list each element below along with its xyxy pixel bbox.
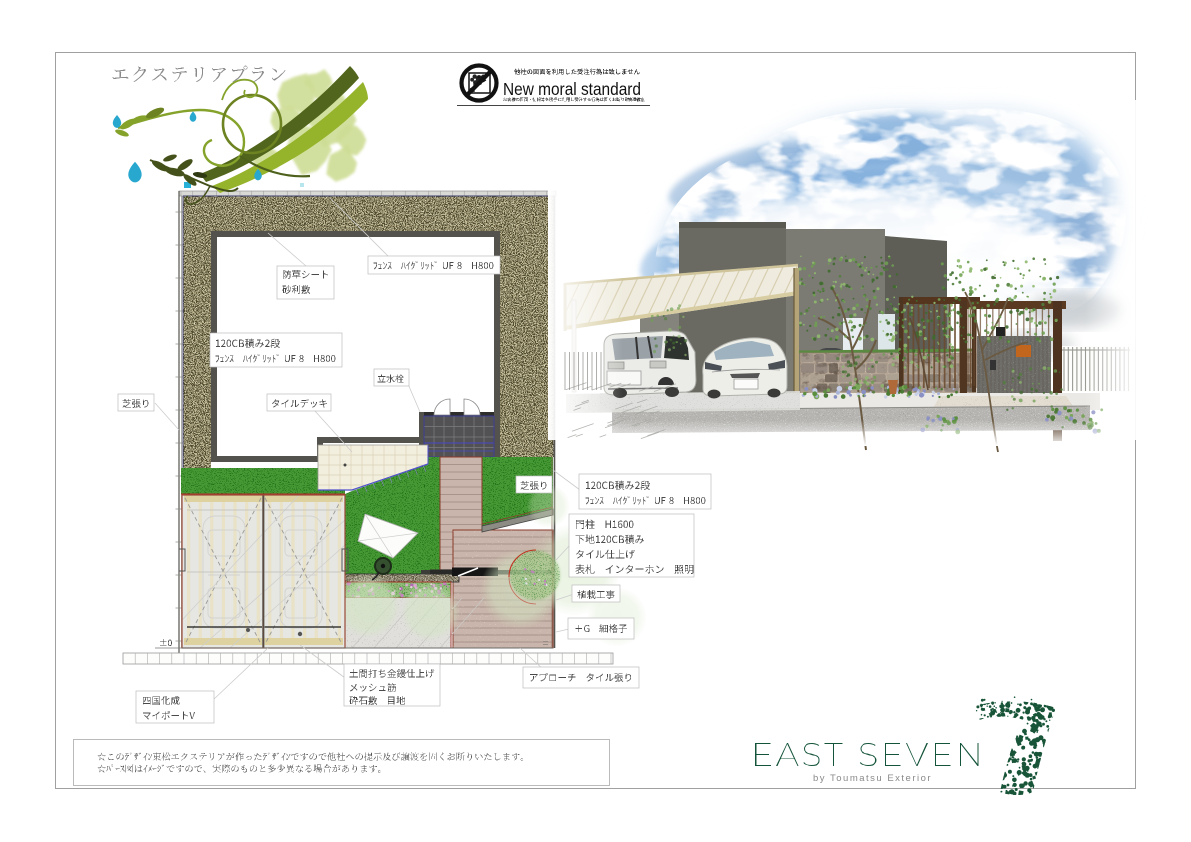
svg-text:New moral standard: New moral standard — [503, 79, 641, 99]
svg-text:by Toumatsu Exterior: by Toumatsu Exterior — [813, 773, 932, 784]
